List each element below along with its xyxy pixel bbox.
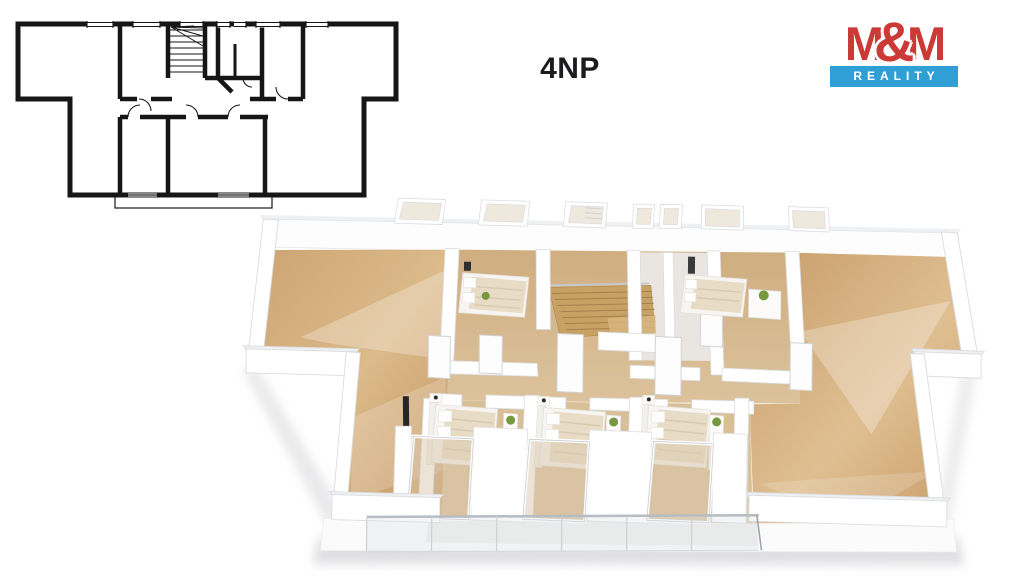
wall-art: [688, 257, 695, 274]
plan3d-glass-doors: [407, 436, 714, 523]
door: [790, 343, 812, 391]
glass-door: [647, 441, 714, 523]
door: [557, 334, 584, 393]
floor-plan-2d: [18, 21, 396, 209]
window-panel: [394, 198, 445, 224]
plan3d-balcony-railing: [366, 512, 761, 555]
page: 4NP M & & M REALITY: [0, 0, 1024, 576]
window-panel: [563, 202, 607, 228]
plant-icon: [759, 290, 769, 300]
plan2d-interior-walls: [120, 24, 303, 195]
plant-icon: [482, 292, 490, 300]
plant-icon: [609, 417, 618, 426]
plant-icon: [712, 417, 721, 426]
window-panel: [659, 204, 682, 228]
bed: [459, 273, 529, 318]
door: [479, 335, 502, 374]
window-panel: [788, 207, 829, 232]
glass-door: [523, 439, 590, 522]
window-panel: [701, 205, 743, 230]
door: [428, 335, 450, 378]
plant-icon: [506, 416, 515, 425]
floor-label: 4NP: [500, 52, 640, 86]
floor-plan-3d: [240, 197, 985, 570]
plan2d-stairs: [170, 26, 203, 72]
window-panel: [632, 204, 654, 228]
brand-logo: M & & M REALITY: [828, 18, 994, 87]
window-panel: [478, 200, 529, 226]
door: [655, 336, 682, 395]
logo-ampersand-icon: & &: [874, 22, 914, 66]
brand-logo-mm: M & & M: [830, 22, 958, 66]
tv-icon: [464, 262, 471, 271]
bed: [681, 275, 747, 318]
